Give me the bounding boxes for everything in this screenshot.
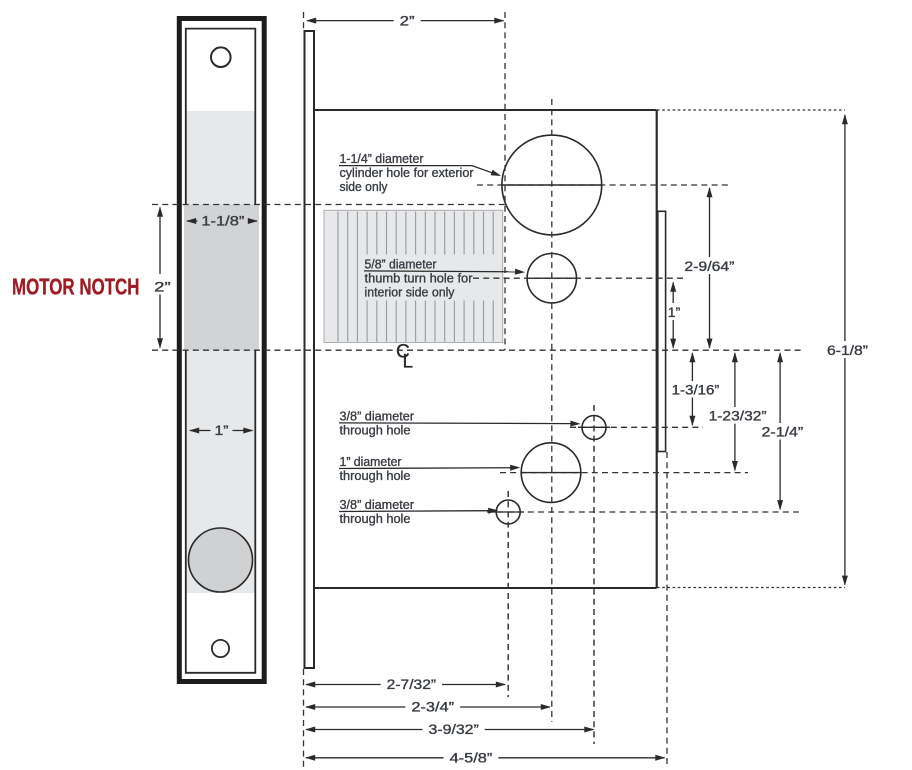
svg-text:2-7/32”: 2-7/32” <box>387 677 437 692</box>
svg-text:2-1/4”: 2-1/4” <box>762 425 804 440</box>
svg-text:L: L <box>403 352 414 373</box>
svg-text:1-1/4” diameter: 1-1/4” diameter <box>340 151 425 166</box>
svg-text:2”: 2” <box>154 280 171 295</box>
svg-text:interior side only: interior side only <box>365 284 455 299</box>
svg-text:cylinder hole for exterior: cylinder hole for exterior <box>340 165 475 180</box>
svg-text:3-9/32”: 3-9/32” <box>429 722 480 737</box>
svg-text:through hole: through hole <box>340 422 411 437</box>
svg-text:1-1/8”: 1-1/8” <box>201 214 245 229</box>
svg-text:1” diameter: 1” diameter <box>340 454 403 469</box>
svg-text:through hole: through hole <box>340 511 411 526</box>
svg-text:1-23/32”: 1-23/32” <box>709 409 768 424</box>
svg-text:MOTOR NOTCH: MOTOR NOTCH <box>12 274 140 300</box>
svg-text:5/8” diameter: 5/8” diameter <box>365 257 438 272</box>
svg-text:thumb turn hole for: thumb turn hole for <box>365 270 474 285</box>
svg-text:6-1/8”: 6-1/8” <box>827 343 869 358</box>
svg-text:3/8” diameter: 3/8” diameter <box>340 409 415 424</box>
svg-text:1-3/16”: 1-3/16” <box>672 383 720 398</box>
svg-text:2-9/64”: 2-9/64” <box>684 259 735 274</box>
svg-text:2-3/4”: 2-3/4” <box>411 700 454 715</box>
svg-text:side only: side only <box>340 179 388 194</box>
svg-text:4-5/8”: 4-5/8” <box>450 750 493 765</box>
svg-text:1”: 1” <box>668 305 681 320</box>
svg-text:1”: 1” <box>215 423 230 438</box>
svg-text:3/8” diameter: 3/8” diameter <box>340 497 415 512</box>
svg-text:through hole: through hole <box>340 468 411 483</box>
svg-text:2”: 2” <box>400 14 416 29</box>
